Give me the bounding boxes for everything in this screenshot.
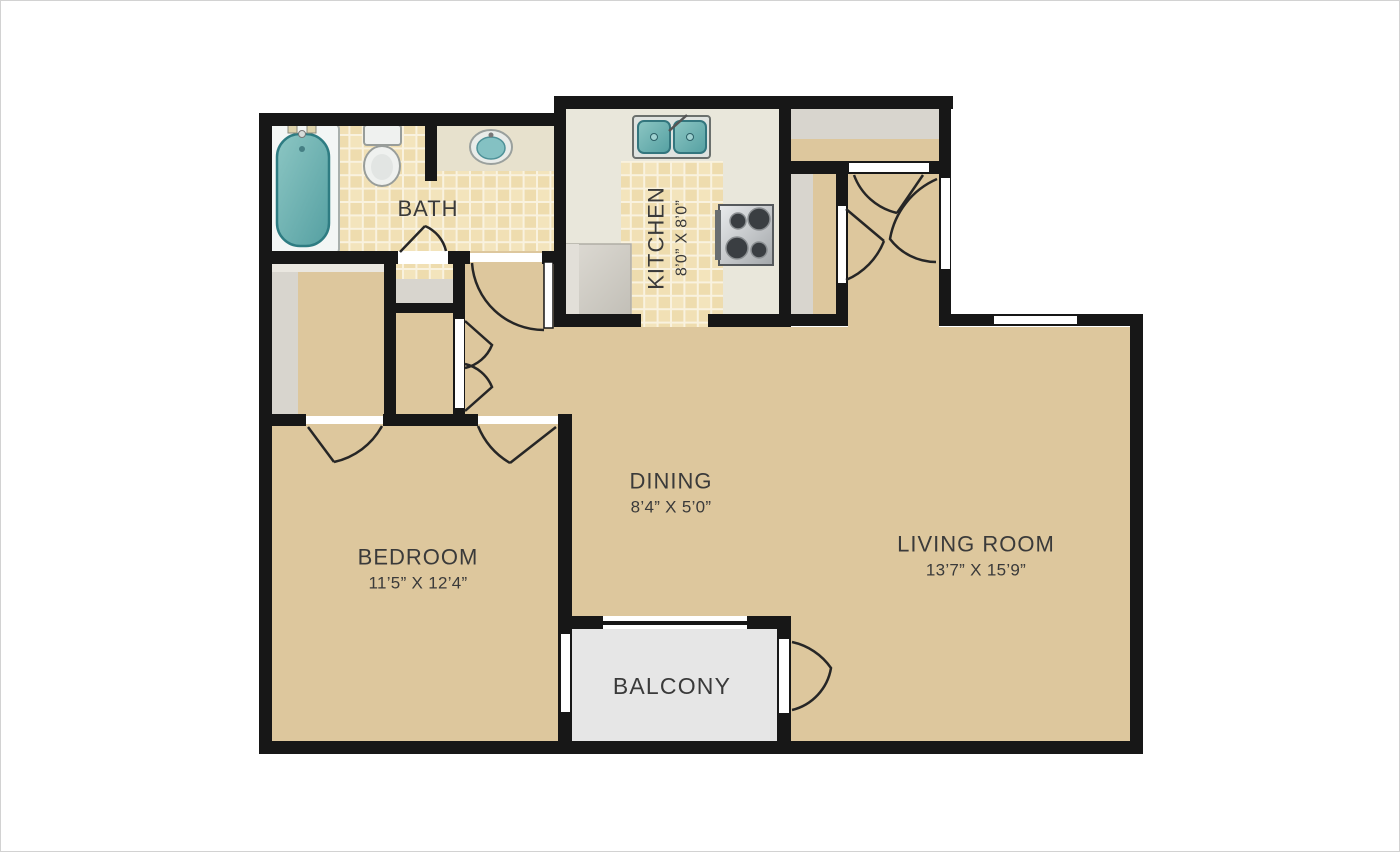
balcony-door-opening xyxy=(779,639,789,713)
toilet-icon xyxy=(364,125,401,186)
refrigerator-icon xyxy=(566,244,631,315)
bath-door-opening xyxy=(398,253,448,262)
room-name: KITCHEN xyxy=(644,186,670,290)
room-label-bath: BATH xyxy=(397,196,458,222)
room-dimensions: 8’4” X 5’0” xyxy=(630,498,713,518)
room-label-kitchen: KITCHEN 8’0” X 8’0” xyxy=(644,186,693,290)
living-room-window xyxy=(994,316,1077,324)
room-name: BEDROOM xyxy=(358,545,479,571)
room-name: DINING xyxy=(630,469,713,495)
entry-closet-opening xyxy=(849,163,929,172)
bedroom-door-opening xyxy=(478,416,558,424)
double-sink-icon xyxy=(633,115,710,158)
room-dimensions: 8’0” X 8’0” xyxy=(673,186,693,290)
room-label-bedroom: BEDROOM 11’5” X 12’4” xyxy=(358,545,479,594)
entry-door-opening xyxy=(941,178,950,269)
balcony-window xyxy=(561,634,570,712)
closet-door-opening xyxy=(306,416,383,424)
room-dimensions: 11’5” X 12’4” xyxy=(358,574,479,594)
room-label-balcony: BALCONY xyxy=(613,673,731,699)
stove-icon xyxy=(715,205,773,265)
sliding-door-track xyxy=(603,621,747,625)
hall-door-opening xyxy=(470,253,542,262)
room-dimensions: 13’7” X 15’9” xyxy=(897,561,1055,581)
room-name: BATH xyxy=(397,196,458,222)
room-label-dining: DINING 8’4” X 5’0” xyxy=(630,469,713,518)
room-name: LIVING ROOM xyxy=(897,532,1055,558)
floor-plan: BATH KITCHEN 8’0” X 8’0” DINING 8’4” X 5… xyxy=(0,0,1400,852)
hall-closet-opening xyxy=(455,319,464,408)
floor-plan-drawing xyxy=(1,1,1399,851)
coat-closet-opening xyxy=(838,206,846,283)
bathtub-icon xyxy=(267,124,339,254)
room-label-living-room: LIVING ROOM 13’7” X 15’9” xyxy=(897,532,1055,581)
room-name: BALCONY xyxy=(613,673,731,699)
sink-icon xyxy=(470,130,512,164)
